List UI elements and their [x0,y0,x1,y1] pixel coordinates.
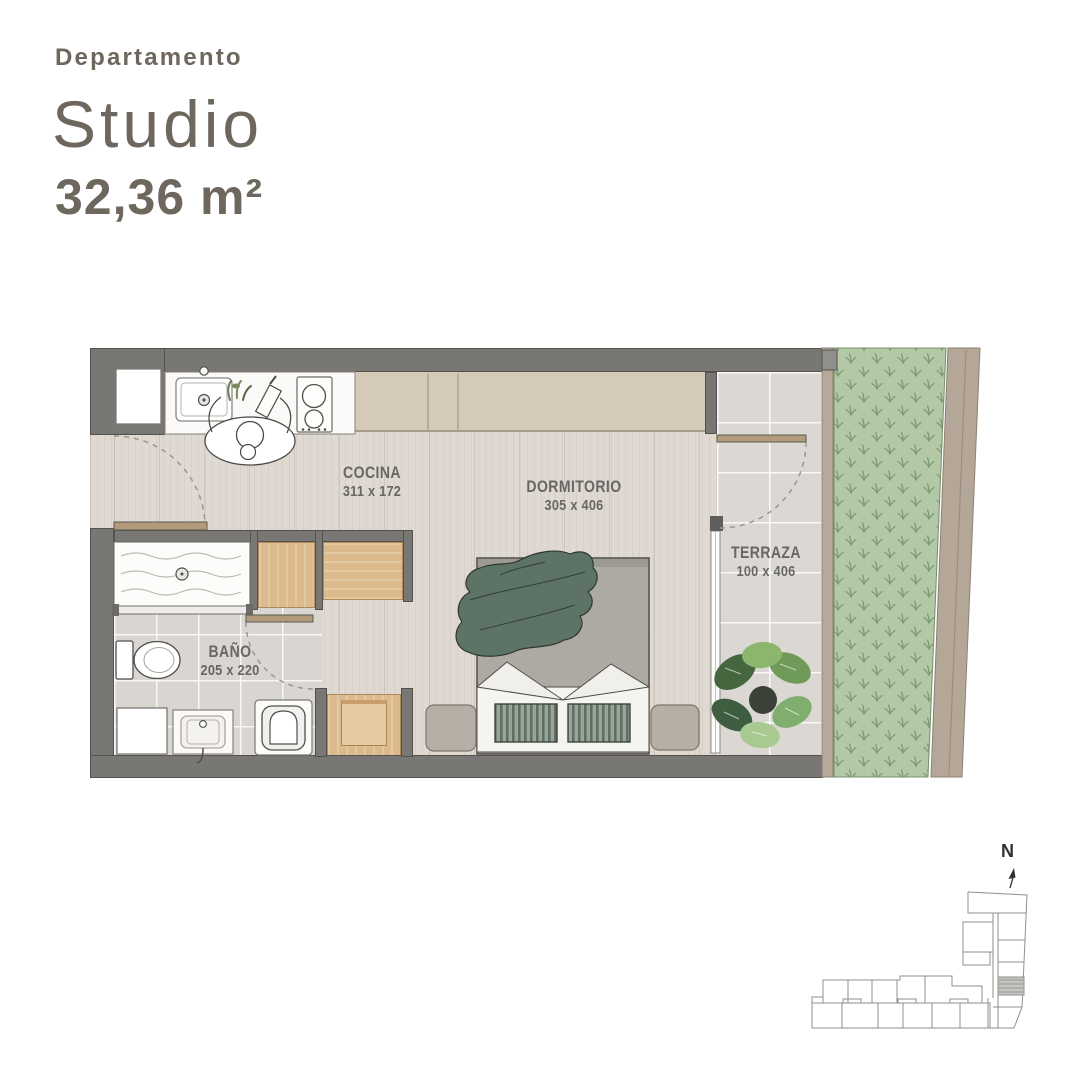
wall-segment [90,528,114,756]
unit-name: Studio [52,86,263,162]
garden [822,348,980,777]
wall-segment [401,688,413,757]
entrance-floor [90,435,114,528]
wall-segment [90,348,823,372]
wardrobe-closet [258,542,315,608]
wall-segment [403,530,413,602]
wall-segment [90,755,823,778]
floorplan-page: Departamento Studio 32,36 m² [0,0,1080,1080]
wall-segment [705,372,717,434]
wall-segment [114,530,413,542]
grass-pattern [834,348,946,777]
cabinet-seam [457,374,459,430]
room-label-cocina: COCINA 311 x 172 [304,464,440,501]
unit-area: 32,36 m² [55,168,263,226]
wall-segment [315,688,327,757]
wardrobe-closet [323,542,403,600]
highlighted-unit [998,977,1024,995]
room-label-dormitorio: DORMITORIO 305 x 406 [506,478,642,515]
kitchen-cabinet-band [355,372,705,432]
desk-chair [341,700,387,746]
north-label: N [1001,841,1014,862]
cabinet-seam [427,374,429,430]
room-label-bano: BAÑO 205 x 220 [169,643,291,680]
wall-segment [315,530,323,610]
wall-segment [90,348,165,435]
stone-path [931,348,980,777]
wall-segment [250,530,258,610]
room-label-terraza: TERRAZA 100 x 406 [713,544,818,581]
building-key-plan [810,885,1070,1040]
unit-type-label: Departamento [55,44,243,72]
